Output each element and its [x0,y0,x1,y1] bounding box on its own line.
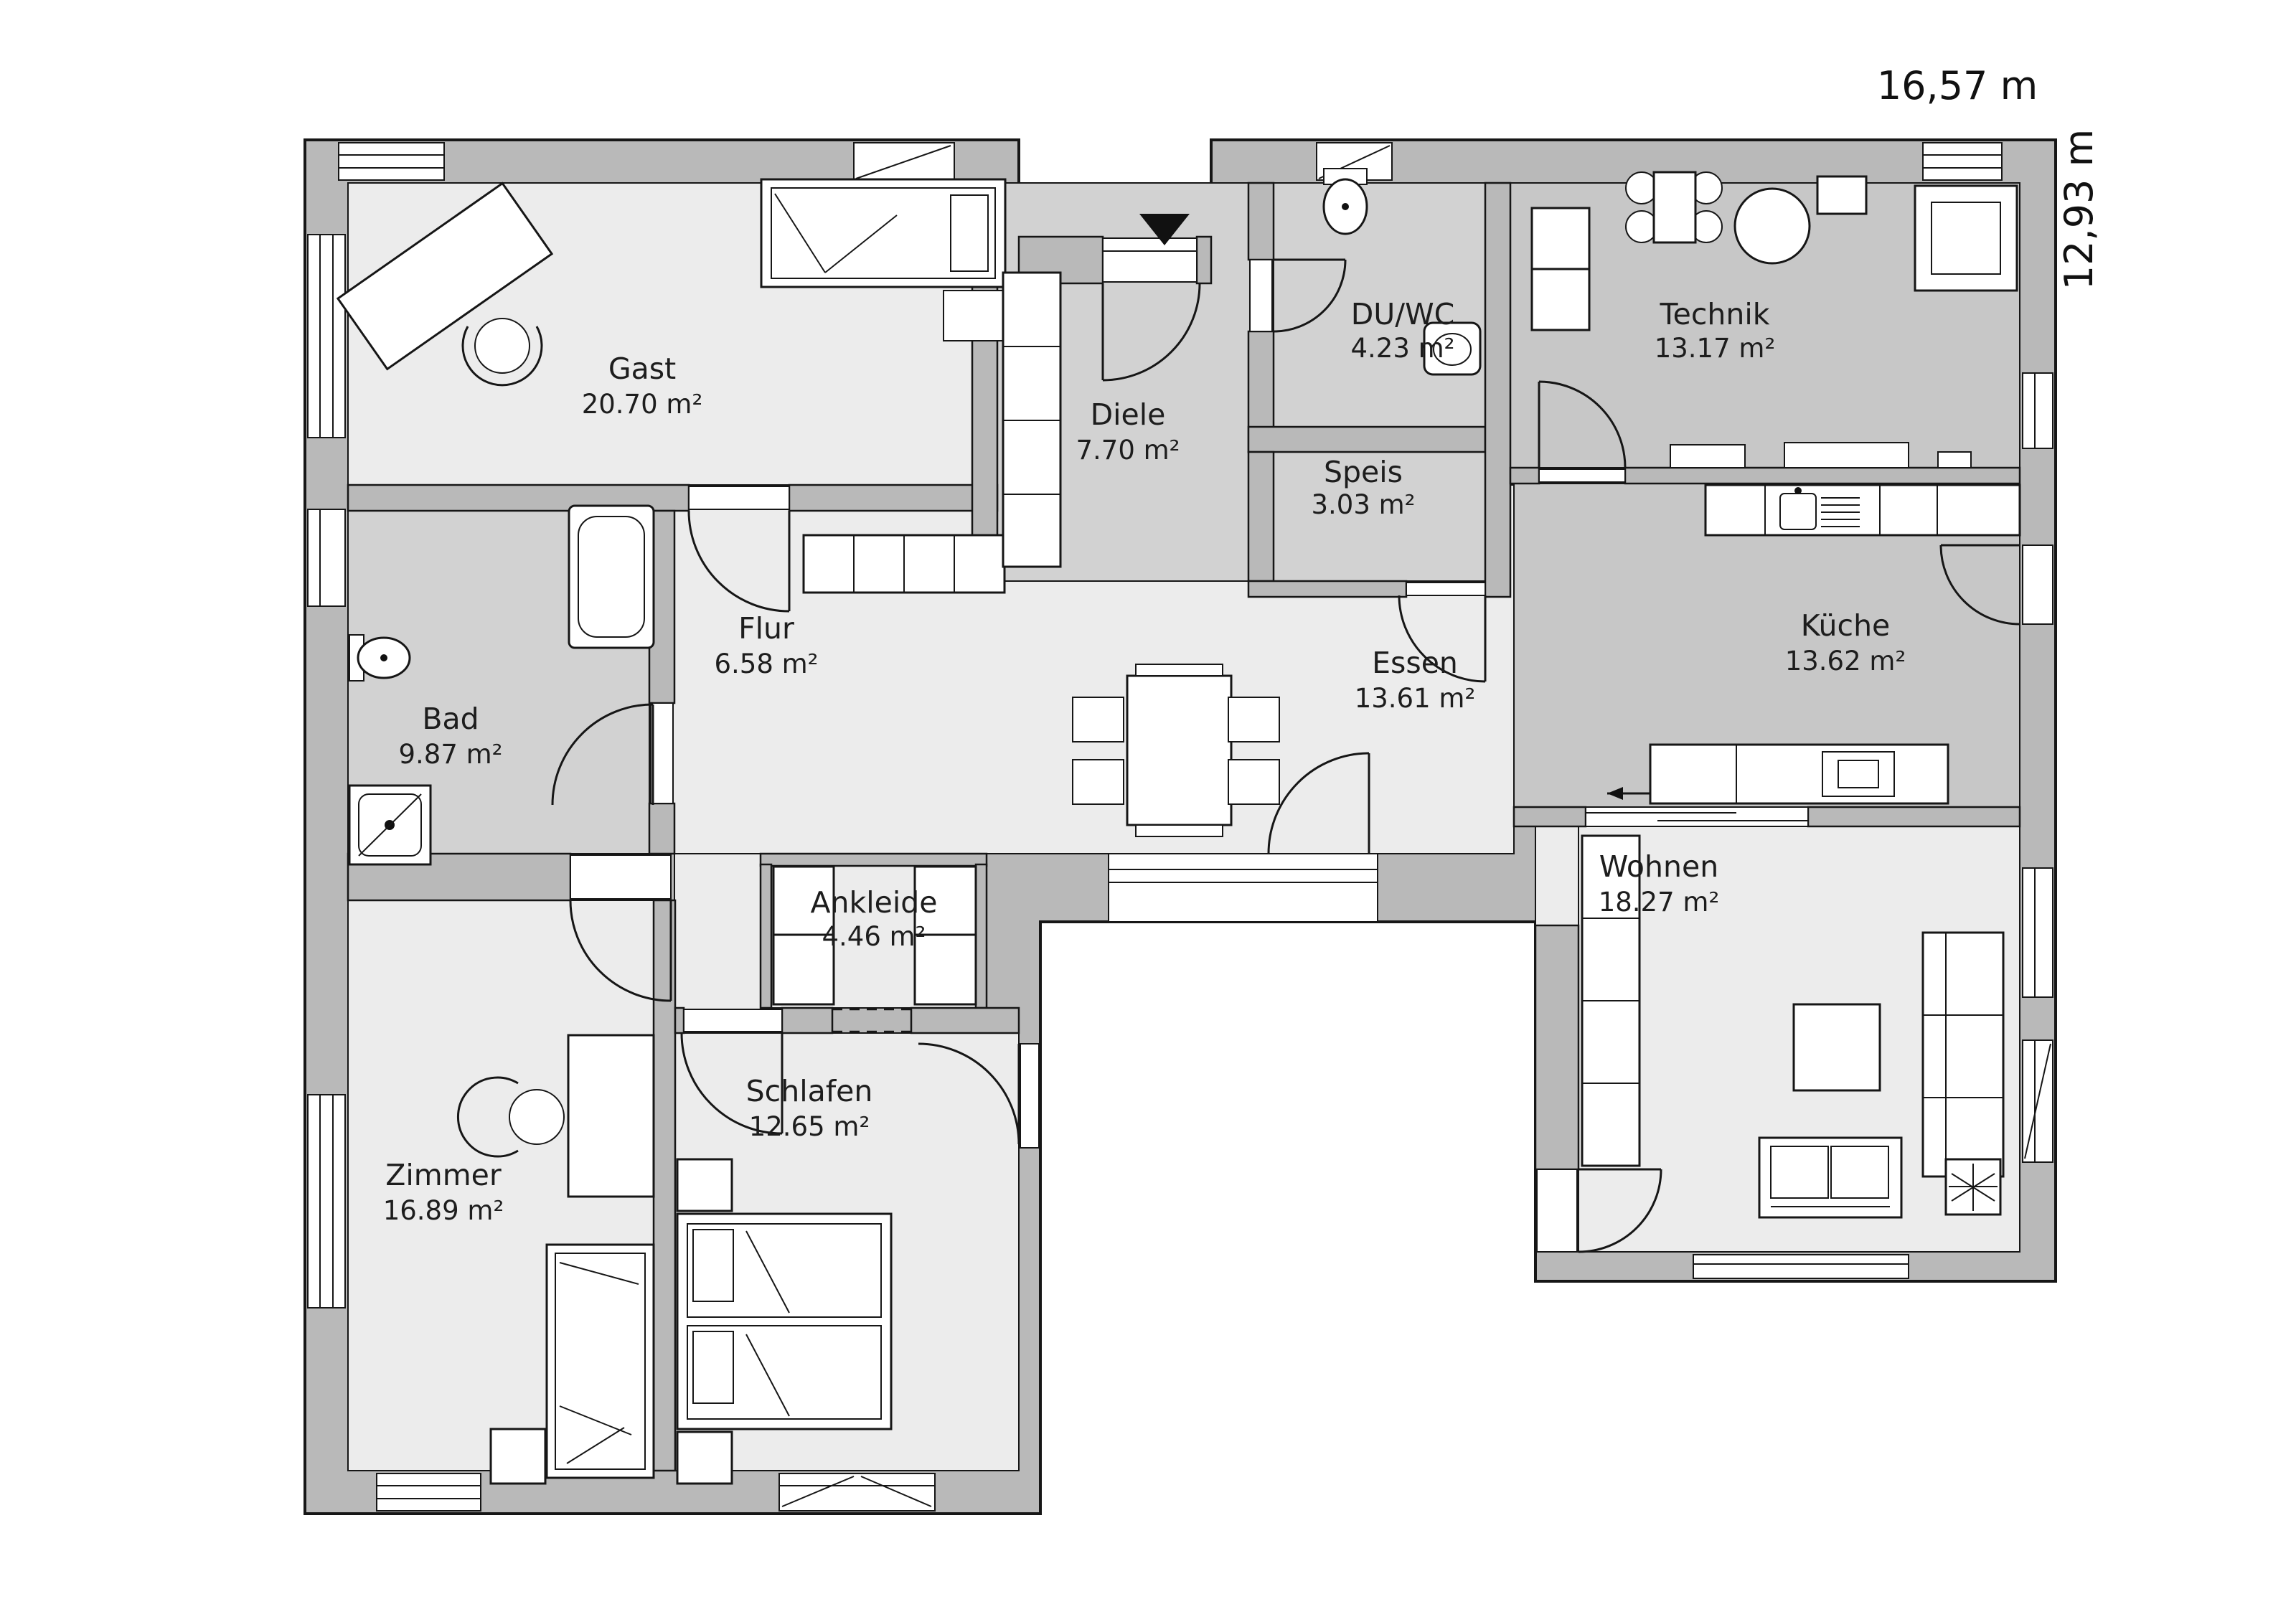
area-gast: 20.70 m² [582,389,703,420]
bathtub-bad [569,506,654,648]
closet-diele [1003,273,1060,567]
label-flur: Flur [738,611,794,646]
area-essen: 13.61 m² [1355,683,1476,714]
loveseat-wohnen [1759,1138,1901,1217]
cupboard-technik-left [1532,208,1589,330]
window-zimmer-left [308,1095,345,1308]
label-gast: Gast [608,352,676,386]
sofa-wohnen [1923,933,2003,1177]
window-technik-top [1923,143,2002,180]
desk-zimmer [568,1035,654,1197]
dining-chair-4 [1228,760,1279,804]
nightstand-schlafen-bottom [677,1432,732,1484]
kitchen-sink [1780,494,1816,529]
shower-bad [349,786,430,864]
label-kueche: Küche [1801,608,1891,643]
floor-plan-page: Gast 20.70 m² Diele 7.70 m² DU/WC 4.23 m… [0,0,2296,1622]
dimension-height: 12,93 m [2056,129,2102,290]
label-zimmer: Zimmer [385,1158,502,1192]
kitchen-counter-bottom [1650,745,1948,803]
floor-corridor [674,854,761,1033]
boiler-technik [1735,189,1810,263]
window-gast-left [308,235,345,438]
area-kueche: 13.62 m² [1785,646,1906,676]
label-ankleide: Ankleide [810,885,937,920]
coffee-table-wohnen [1794,1004,1880,1090]
toilet-bad [349,635,410,681]
bed-gast [761,179,1005,287]
window-bad-left [308,509,345,606]
window-schlafen-bottom [779,1474,935,1511]
nightstand-zimmer [491,1429,545,1484]
area-duwc: 4.23 m² [1350,333,1454,364]
nightstand-gast [944,291,1004,341]
dining-chair-2 [1073,760,1124,804]
label-wohnen: Wohnen [1599,849,1718,884]
nightstand-schlafen-top [677,1159,732,1211]
toilet-duwc [1324,169,1367,234]
window-zimmer-bottom [377,1474,481,1511]
area-zimmer: 16.89 m² [383,1195,504,1226]
window-wohnen-right-2 [2023,1040,2053,1162]
sideboard-flur [804,535,1004,593]
double-bed-schlafen [677,1214,891,1429]
cabinet-technik-1 [1817,176,1866,214]
shelf-wohnen [1582,836,1639,1166]
dining-chair-1 [1073,697,1124,742]
appliance-technik [1915,186,2017,291]
window-gast-top-2 [854,143,954,180]
area-schlafen: 12.65 m² [749,1111,870,1142]
label-duwc: DU/WC [1351,297,1455,331]
area-bad: 9.87 m² [398,739,502,770]
dining-chair-3 [1228,697,1279,742]
label-schlafen: Schlafen [746,1074,873,1108]
area-diele: 7.70 m² [1076,435,1180,466]
dimension-width: 16,57 m [1877,63,2038,108]
area-ankleide: 4.46 m² [822,921,926,952]
floor-wohnen-passage [1535,825,1578,925]
label-bad: Bad [422,702,479,736]
window-gast-top-1 [339,143,444,180]
label-technik: Technik [1660,297,1770,331]
area-wohnen: 18.27 m² [1599,887,1720,918]
kitchen-counter-top [1705,485,2020,535]
area-flur: 6.58 m² [714,649,818,679]
area-speis: 3.03 m² [1311,489,1415,520]
bed-zimmer [547,1245,654,1478]
floor-plan-drawing: Gast 20.70 m² Diele 7.70 m² DU/WC 4.23 m… [0,0,2296,1622]
plant-wohnen [1946,1159,2000,1215]
label-essen: Essen [1372,646,1458,680]
window-wohnen-bottom [1693,1255,1909,1278]
window-wohnen-right-1 [2023,868,2053,997]
window-technik-right [2023,373,2053,448]
area-technik: 13.17 m² [1655,333,1776,364]
label-speis: Speis [1324,455,1403,489]
label-diele: Diele [1091,397,1166,432]
